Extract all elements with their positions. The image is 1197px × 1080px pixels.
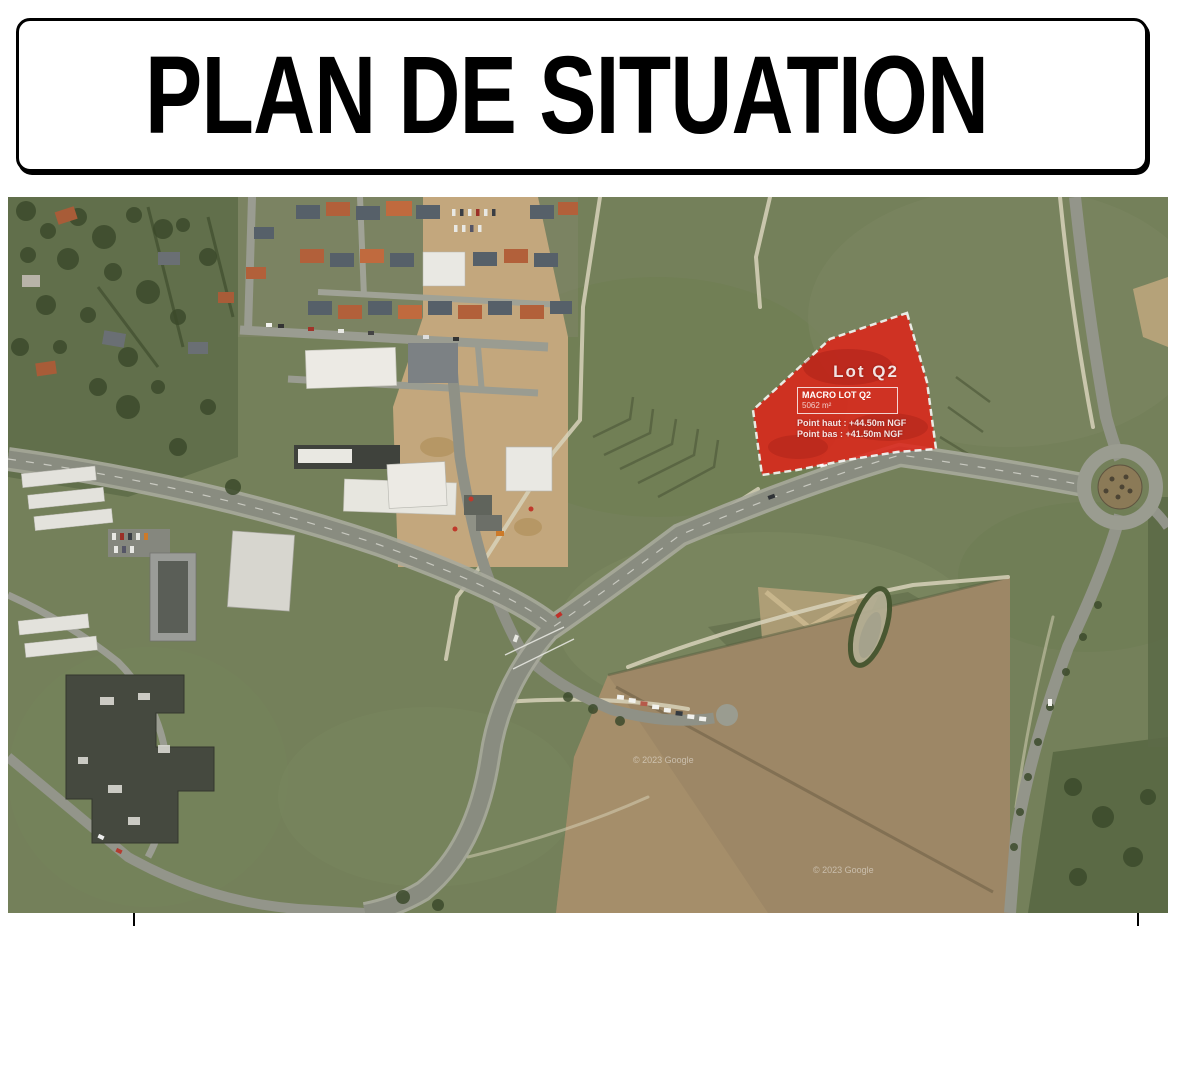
satellite-image: © 2023 Google © 2023 Google [8, 197, 1168, 913]
lot-macro-label: MACRO LOT Q2 [802, 390, 893, 401]
lot-elevation-labels: Point haut : +44.50m NGF Point bas : +41… [797, 418, 906, 440]
google-watermark: © 2023 Google [813, 865, 874, 875]
aerial-map: © 2023 Google © 2023 Google Lot Q2 MACRO… [8, 197, 1168, 913]
lot-area-label: 5062 m² [802, 401, 893, 411]
lot-point-bas: Point bas : +41.50m NGF [797, 429, 906, 440]
crop-mark [1137, 913, 1139, 926]
plan-page: PLAN DE SITUATION [0, 0, 1197, 1080]
page-title: PLAN DE SITUATION [145, 21, 988, 169]
lot-point-haut: Point haut : +44.50m NGF [797, 418, 906, 429]
title-box: PLAN DE SITUATION [16, 18, 1148, 172]
lot-info-box: MACRO LOT Q2 5062 m² [797, 387, 898, 414]
google-watermark: © 2023 Google [633, 755, 694, 765]
crop-mark [133, 913, 135, 926]
lot-name-label: Lot Q2 [806, 362, 926, 382]
